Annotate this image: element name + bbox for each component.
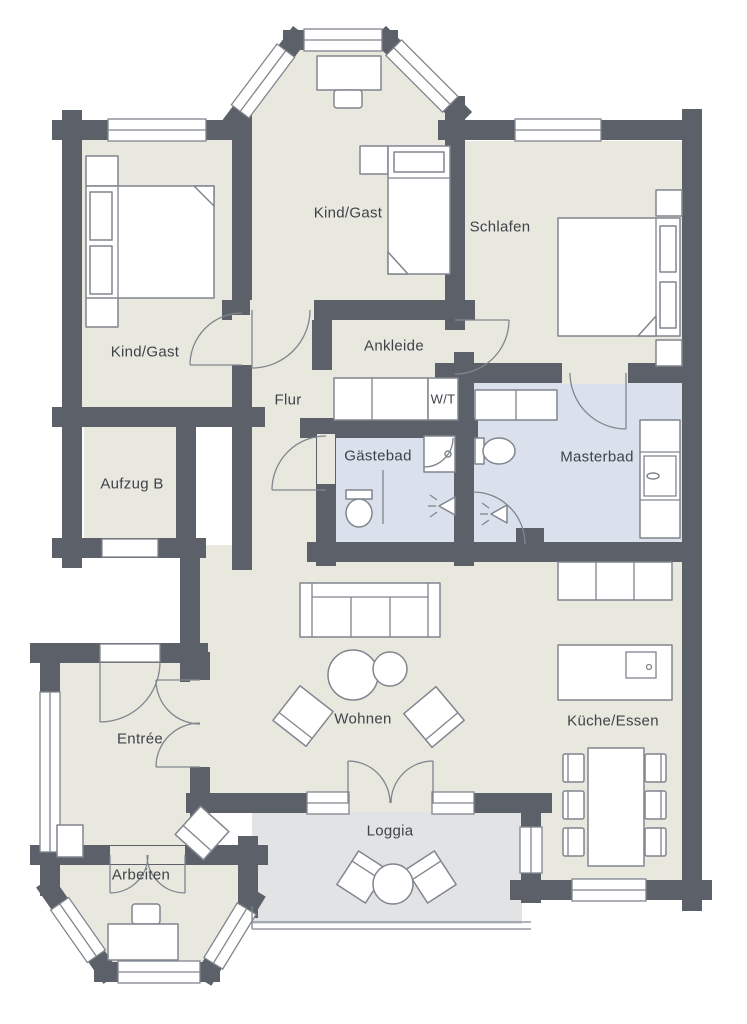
window — [108, 119, 206, 141]
side-table — [57, 825, 83, 857]
room-label-wohnen: Wohnen — [334, 711, 391, 728]
room-label-kind-gast-top: Kind/Gast — [314, 205, 383, 222]
floor-plan: Kind/GastSchlafenKind/GastAnkleideFlurW/… — [0, 0, 747, 1024]
room-label-aufzug-b: Aufzug B — [100, 476, 163, 493]
room-label-kueche-essen: Küche/Essen — [567, 713, 659, 730]
room-label-ankleide: Ankleide — [364, 338, 424, 355]
toilet — [475, 438, 515, 464]
room-label-wt: W/T — [431, 392, 456, 407]
loggia-table — [373, 864, 413, 904]
entrance-door-opening — [100, 644, 160, 662]
sofa — [300, 583, 440, 637]
dining-table — [588, 748, 644, 866]
kitchen-island — [558, 645, 672, 700]
toilet — [346, 490, 372, 527]
window — [515, 119, 601, 141]
kitchen-counter — [558, 562, 672, 600]
room-label-arbeiten: Arbeiten — [112, 867, 170, 884]
room-label-schlafen: Schlafen — [470, 219, 531, 236]
elevator-door-opening — [102, 539, 158, 557]
room-label-entree: Entrée — [117, 731, 163, 748]
room-label-kind-gast-left: Kind/Gast — [111, 344, 180, 361]
room-label-loggia: Loggia — [367, 823, 414, 840]
window — [520, 827, 542, 873]
bathtub-vanity — [640, 420, 680, 538]
window — [432, 792, 474, 814]
wardrobe — [334, 378, 428, 420]
room-label-gaestebad: Gästebad — [344, 448, 411, 465]
vanity-counter — [475, 390, 557, 420]
room-label-flur: Flur — [274, 392, 301, 409]
window — [307, 792, 349, 814]
window — [304, 29, 382, 51]
room-label-masterbad: Masterbad — [560, 449, 634, 466]
window — [572, 879, 646, 901]
window — [118, 961, 200, 983]
